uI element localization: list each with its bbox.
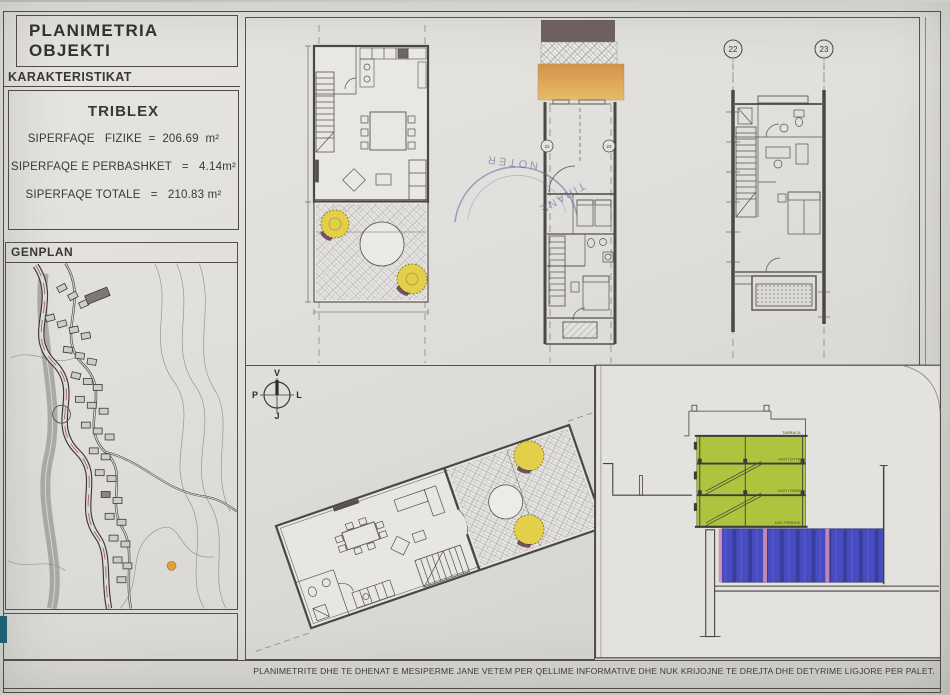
stamp-text-bottom: TIRANE	[536, 179, 587, 216]
area-total: SIPERFAQE TOTALE = 210.83 m²	[9, 189, 238, 201]
section-label-ground: KATI PERDHE	[775, 520, 801, 525]
genplan-highlight-dot	[167, 561, 176, 570]
plan2-band-herringbone	[541, 42, 617, 64]
frame-inner-line	[925, 17, 926, 366]
divider	[3, 86, 240, 87]
grid-bubble-label: 22	[729, 45, 738, 54]
plan3-terrace-planter	[756, 284, 812, 306]
characteristics-box: TRIBLEX SIPERFAQE FIZIKE = 206.69 m² SIP…	[8, 90, 239, 230]
footer-disclaimer: PLANIMETRITE DHE TE DHENAT E MESIPERME J…	[248, 666, 940, 676]
plan1-tv	[316, 160, 319, 182]
section-label-floor2: KATI I DYTE	[778, 457, 801, 462]
scanned-plan-photo: PLANIMETRIA OBJEKTI KARAKTERISTIKAT TRIB…	[0, 0, 950, 695]
rotated-plan-group	[252, 379, 594, 655]
building-section: TARRACA KATI I DYTE KATI I PARE KATI PER…	[595, 364, 941, 660]
characteristics-label: KARAKTERISTIKAT	[8, 70, 132, 84]
plan2-band-orange	[538, 64, 624, 100]
genplan-secondary-road	[65, 263, 237, 608]
plan2-band-brown	[541, 20, 615, 42]
plan2-stair	[549, 236, 565, 306]
area-shared: SIPERFAQE E PERBASHKET = 4.14m²	[9, 161, 238, 173]
genplan-box: GENPLAN	[5, 242, 238, 610]
floor-plan-right: 22 23	[696, 32, 896, 337]
footer-top-line	[3, 660, 941, 661]
genplan-map	[6, 263, 237, 609]
unit-name: TRIBLEX	[9, 103, 238, 120]
plan1-outer-walls	[314, 46, 428, 202]
notes-box	[3, 613, 238, 660]
plan1-round-feature	[360, 222, 404, 266]
footer-bottom-line	[3, 688, 941, 689]
plan-sheet: PLANIMETRIA OBJEKTI KARAKTERISTIKAT TRIB…	[0, 2, 950, 693]
section-label-floor1: KATI I PARE	[778, 488, 801, 493]
plan3-grid-bubbles: 22 23	[724, 40, 833, 90]
section-garage-blue	[719, 529, 884, 582]
floor-plan-rotated	[252, 374, 594, 660]
round-stamp: NOTER TIRANE	[440, 107, 610, 227]
genplan-buildings	[45, 283, 132, 582]
grid-bubble-label: 23	[820, 45, 829, 54]
section-green-floors: TARRACA KATI I DYTE KATI I PARE KATI PER…	[694, 430, 808, 527]
teal-edge-swatch	[0, 616, 7, 643]
section-label-roof: TARRACA	[782, 430, 801, 435]
page-title: PLANIMETRIA OBJEKTI	[29, 21, 237, 61]
area-physical: SIPERFAQE FIZIKE = 206.69 m²	[9, 133, 238, 145]
floor-plan-ground	[300, 32, 440, 342]
plan3-rooms	[735, 104, 822, 310]
title-box: PLANIMETRIA OBJEKTI	[16, 15, 238, 67]
genplan-label: GENPLAN	[11, 245, 73, 259]
stamp-text-top: NOTER	[484, 153, 539, 171]
